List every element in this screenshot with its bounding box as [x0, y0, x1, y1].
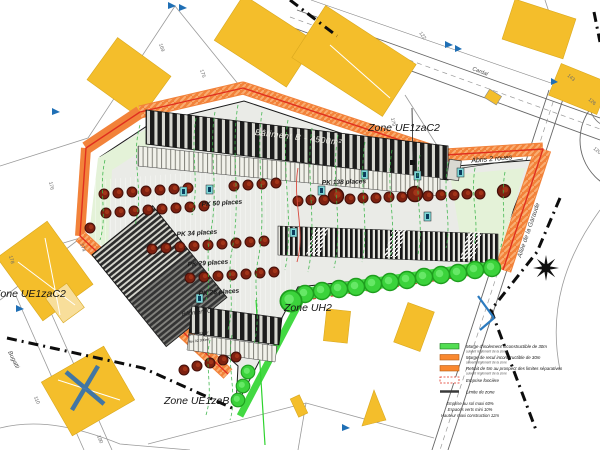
parcel-number: 174 — [78, 243, 86, 253]
zone-label-left: Zone UE1zaC2 — [0, 288, 66, 300]
legend-swatch-emprise — [440, 377, 459, 383]
compass-rose-icon — [533, 255, 559, 281]
site-plan-map: Zone UE1zaC2 Zone UE1zaC2 Zone UH2 Zone … — [0, 0, 600, 450]
parcel-number: 190 — [95, 435, 104, 445]
legend: Marge d'isolement inconstructible de 30m… — [440, 344, 563, 419]
parcel-number: 169 — [157, 43, 165, 53]
zone-label-bottom: Zone UE1zaB — [163, 395, 229, 407]
street-label-bugatti: Bugatti — [6, 350, 20, 370]
legend-swatch-green — [440, 344, 459, 350]
zone-label-top: Zone UE1zaC2 — [367, 122, 440, 134]
street-label-cardal: Cardal — [471, 66, 489, 78]
legend-swatch-orange1 — [440, 355, 459, 361]
legend-note: Emprise au sol maxi 60% — [446, 401, 494, 406]
zone-label-south: Zone UH2 — [283, 302, 332, 314]
legend-item-sub: suivant règlement de la zone — [466, 350, 507, 354]
legend-item-label: Marge d'isolement inconstructible de 30m — [466, 344, 547, 349]
parcel-number: 176 — [47, 181, 55, 191]
parcel-number: 120 — [592, 146, 600, 156]
parcel-number: 175 — [198, 69, 206, 79]
legend-item-sub: suivant règlement de la zone — [466, 372, 507, 376]
legend-note: Espaces verts mini 10% — [448, 407, 493, 412]
parcel-number: 110 — [32, 396, 41, 406]
legend-item-label: Emprise foncière — [466, 378, 500, 383]
legend-item-label: Retrait de 5m au prospect des limites sé… — [466, 366, 563, 371]
legend-note: Hauteur maxi construction 12m — [441, 413, 499, 418]
legend-item-sub: suivant règlement de la zone — [466, 361, 507, 365]
legend-item-label: Limite de zone — [466, 390, 495, 395]
legend-swatch-orange2 — [440, 366, 459, 372]
legend-item-label: Marge de recul inconstructible de 30m — [466, 355, 541, 360]
